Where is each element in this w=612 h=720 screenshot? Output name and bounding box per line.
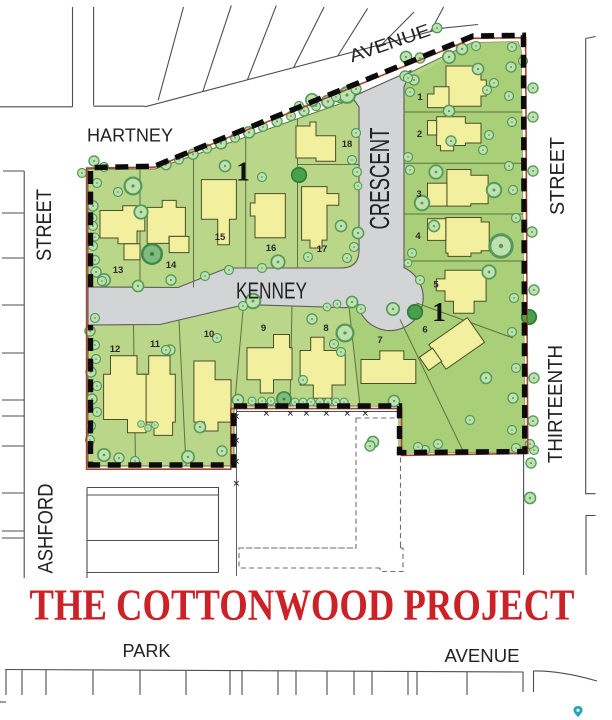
svg-text:4: 4: [415, 231, 421, 242]
svg-text:ASHFORD: ASHFORD: [34, 484, 58, 574]
svg-text:15: 15: [215, 232, 226, 243]
svg-text:1: 1: [432, 296, 446, 327]
svg-text:KENNEY: KENNEY: [236, 278, 307, 304]
svg-text:14: 14: [166, 260, 177, 271]
svg-text:17: 17: [317, 244, 328, 255]
svg-text:1: 1: [236, 156, 250, 187]
svg-text:3: 3: [416, 189, 421, 200]
svg-text:9: 9: [261, 323, 266, 334]
svg-text:13: 13: [113, 265, 124, 276]
svg-text:7: 7: [377, 335, 382, 346]
svg-text:AVENUE: AVENUE: [445, 646, 520, 666]
svg-text:PARK: PARK: [123, 641, 171, 661]
svg-text:16: 16: [266, 243, 277, 254]
svg-text:HARTNEY: HARTNEY: [87, 126, 173, 146]
svg-text:5: 5: [433, 280, 439, 291]
svg-text:THE COTTONWOOD PROJECT: THE COTTONWOOD PROJECT: [30, 581, 575, 630]
svg-text:STREET: STREET: [546, 137, 569, 215]
svg-text:1: 1: [417, 92, 423, 103]
svg-text:18: 18: [342, 139, 353, 150]
svg-text:THIRTEENTH: THIRTEENTH: [544, 345, 567, 463]
svg-text:6: 6: [422, 325, 427, 336]
svg-text:2: 2: [417, 129, 422, 140]
svg-text:10: 10: [204, 329, 215, 340]
svg-text:STREET: STREET: [32, 189, 56, 261]
svg-text:11: 11: [150, 339, 161, 350]
svg-text:12: 12: [110, 344, 121, 355]
svg-text:8: 8: [323, 323, 328, 334]
svg-text:CRESCENT: CRESCENT: [364, 128, 395, 230]
